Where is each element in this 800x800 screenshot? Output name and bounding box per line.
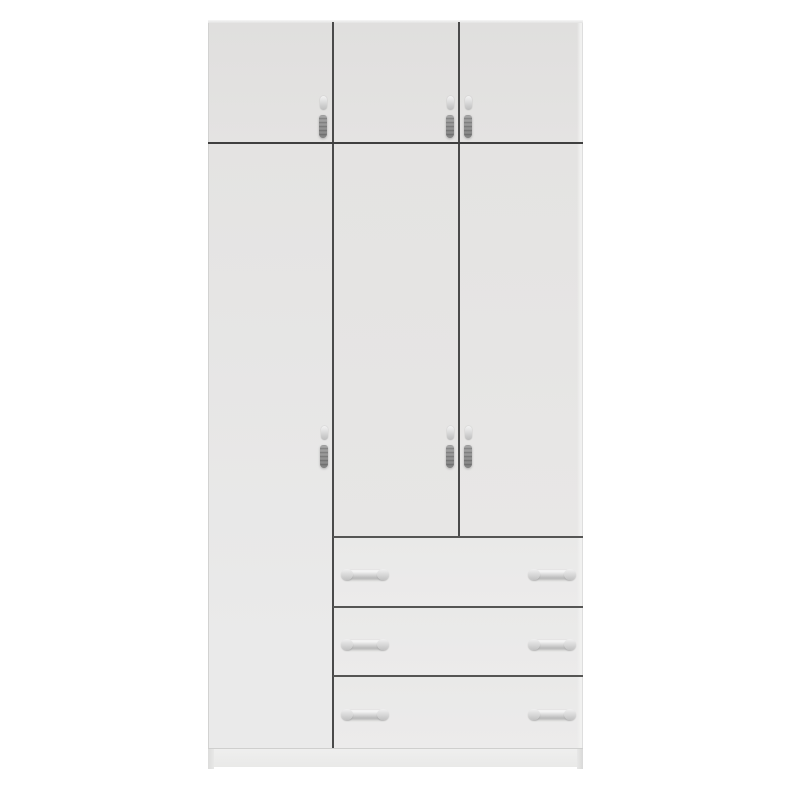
wardrobe — [208, 20, 583, 768]
handle-knob — [447, 426, 454, 440]
vertical-seam-left — [332, 22, 334, 748]
handle-grip — [319, 115, 327, 138]
wardrobe-door-left-full-height — [208, 144, 333, 748]
drawer-handle — [530, 640, 574, 649]
right-side-panel — [577, 23, 583, 748]
handle-grip — [464, 115, 472, 138]
drawer-handle — [343, 640, 387, 649]
drawer-handle — [530, 710, 574, 719]
right-foot — [577, 749, 583, 769]
drawer-handle — [530, 570, 574, 579]
handle-knob — [320, 96, 327, 110]
handle-grip — [446, 445, 454, 468]
vertical-seam-right — [458, 22, 460, 538]
plinth-kick-plate — [214, 749, 577, 767]
left-side-edge — [208, 23, 209, 748]
handle-knob — [465, 96, 472, 110]
horizontal-seam-overhead — [208, 142, 583, 144]
product-photo — [0, 0, 800, 800]
wardrobe-door-center — [333, 144, 459, 538]
left-foot — [208, 749, 214, 769]
handle-knob — [447, 96, 454, 110]
handle-knob — [465, 426, 472, 440]
drawer-handle — [343, 710, 387, 719]
handle-grip — [446, 115, 454, 138]
drawer-handle — [343, 570, 387, 579]
wardrobe-door-right — [459, 144, 583, 538]
handle-grip — [464, 445, 472, 468]
handle-grip — [320, 445, 328, 468]
seam-drawer-1-2 — [333, 606, 583, 608]
seam-drawer-2-3 — [333, 675, 583, 677]
handle-knob — [321, 426, 328, 440]
overhead-cabinet-door-left — [208, 23, 333, 144]
overhead-cabinet-door-center — [333, 23, 459, 144]
seam-doors-drawers — [333, 536, 583, 538]
overhead-cabinet-door-right — [459, 23, 583, 144]
